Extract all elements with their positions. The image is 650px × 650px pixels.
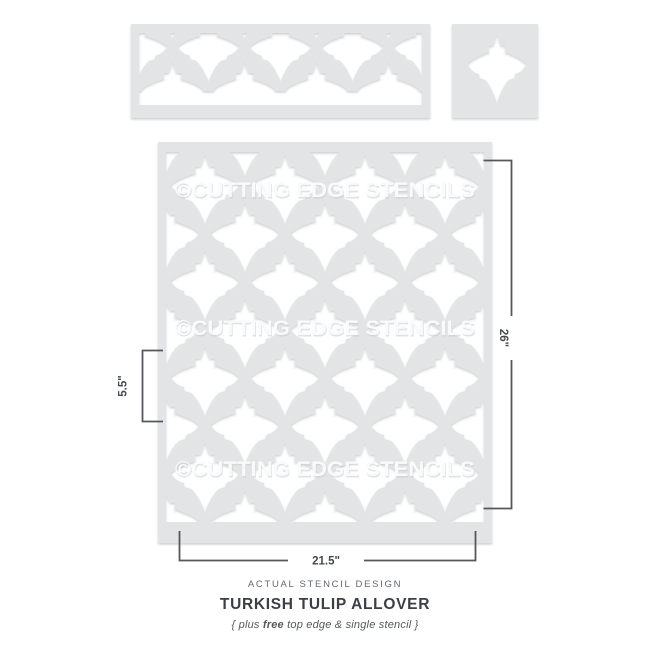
stencil-graphic: ©CUTTING EDGE STENCILS ©CUTTING EDGE STE… xyxy=(0,0,650,650)
watermark-row-2: ©CUTTING EDGE STENCILS ©CUTTING EDGE STE… xyxy=(175,317,476,341)
product-title: TURKISH TULIP ALLOVER xyxy=(0,596,650,614)
height-dimension-label: 26" xyxy=(497,329,509,347)
watermark-text: ©CUTTING EDGE STENCILS xyxy=(175,179,475,202)
single-stencil-sheet xyxy=(452,24,538,118)
caption-kicker: ACTUAL STENCIL DESIGN xyxy=(0,579,650,590)
caption-note-post: top edge & single stencil } xyxy=(284,619,419,631)
caption-note-free: free xyxy=(263,619,284,631)
caption-note-pre: { plus xyxy=(232,619,263,631)
watermark-row-1: ©CUTTING EDGE STENCILS ©CUTTING EDGE STE… xyxy=(175,179,476,203)
width-dimension-label: 21.5" xyxy=(312,556,340,568)
watermark-text: ©CUTTING EDGE STENCILS xyxy=(175,317,475,340)
watermark-row-3: ©CUTTING EDGE STENCILS ©CUTTING EDGE STE… xyxy=(175,458,476,482)
stencil-product-image: ©CUTTING EDGE STENCILS ©CUTTING EDGE STE… xyxy=(0,0,650,650)
border-stencil-sheet xyxy=(131,24,430,118)
watermark-text: ©CUTTING EDGE STENCILS xyxy=(175,458,475,481)
motif-dimension-label: 5.5" xyxy=(118,375,130,396)
caption-note: { plus free top edge & single stencil } xyxy=(0,619,650,631)
